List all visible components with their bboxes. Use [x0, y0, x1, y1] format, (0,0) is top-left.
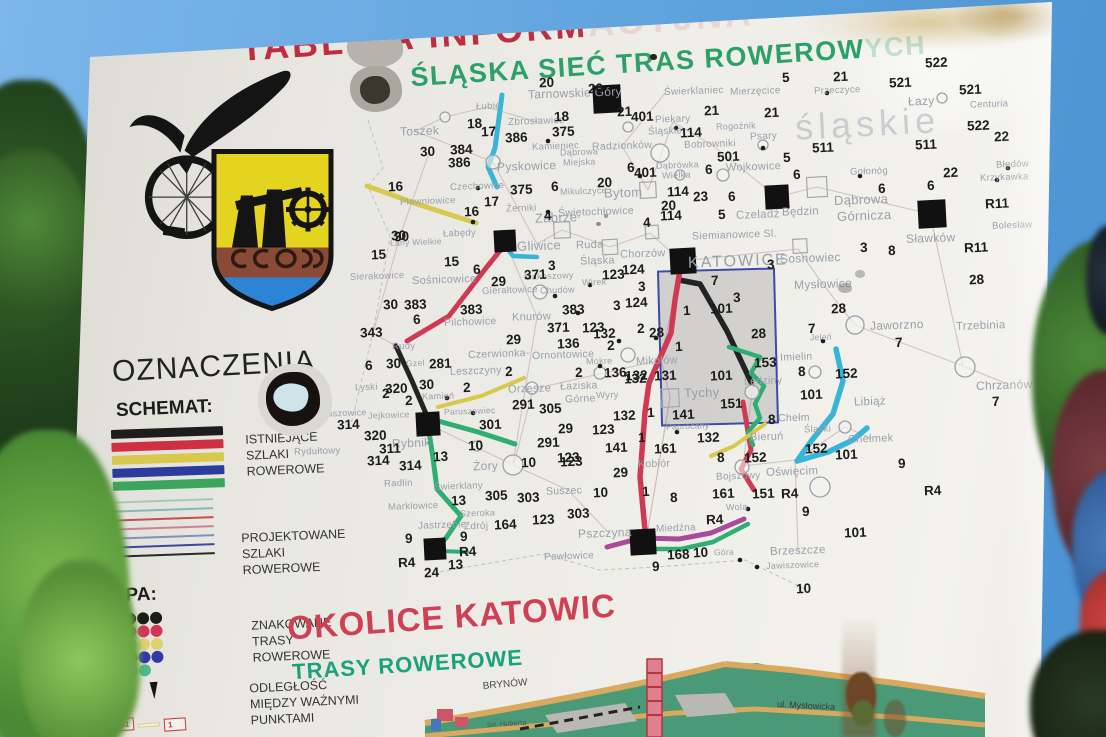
map-route-number: 8: [798, 364, 806, 379]
map-route-number: 3: [613, 298, 621, 313]
map-town-label: Radlin: [384, 478, 413, 490]
map-town-label: Jawiszowice: [766, 559, 820, 571]
map-route-number: 305: [539, 401, 562, 417]
map-route-number: 101: [710, 301, 733, 317]
map-route-number: 6: [728, 189, 736, 204]
street-label-district: BRYNÓW: [482, 675, 528, 692]
map-route-number: 7: [711, 273, 719, 288]
map-route-number: 401: [634, 165, 657, 181]
map-town-label: Czeladź: [736, 208, 780, 222]
street-map-fragment: BRYNÓW św. Huberta ul. Mysłowicka: [425, 653, 985, 737]
map-route-number: 511: [812, 140, 834, 156]
map-route-number: R4: [398, 555, 416, 571]
map-town-label: Śląski: [804, 424, 832, 436]
map-town-label: Sierakowice: [350, 270, 405, 283]
map-town-label: Błędów: [996, 158, 1029, 170]
map-town-label: Marklowice: [388, 500, 439, 513]
map-town-label: Mysłowice: [794, 276, 853, 292]
map-route-number: 16: [388, 179, 404, 195]
map-route-number: 383: [562, 302, 585, 318]
map-town-label: Szeroka: [460, 507, 495, 518]
map-route-number: 3: [860, 240, 868, 255]
map-route-number: 22: [994, 129, 1010, 145]
map-marker-square: [493, 229, 516, 252]
map-marker-square: [629, 528, 656, 555]
map-route-number: 16: [464, 204, 480, 220]
map-route-number: 7: [808, 321, 816, 336]
map-route-number: 511: [915, 137, 937, 153]
map-town-label: Wyry: [596, 390, 619, 402]
map-route-number: 6: [878, 181, 886, 196]
map-route-number: 29: [491, 274, 507, 290]
map-route-number: 383: [404, 297, 427, 313]
map-route-number: 101: [710, 368, 733, 384]
map-route-number: 301: [479, 417, 502, 433]
map-route-number: 521: [959, 82, 982, 98]
map-route-number: 151: [720, 396, 743, 412]
map-town-label: Paruszowiec: [444, 405, 496, 417]
map-town-label: Świerklaniec: [664, 85, 724, 98]
map-marker-square: [423, 537, 446, 560]
map-town-label: Pyskowice: [497, 158, 557, 174]
map-town-label: Zdrój: [464, 521, 489, 533]
map-route-number: 101: [835, 447, 858, 463]
map-route-number: 314: [337, 417, 360, 433]
map-route-number: 5: [718, 207, 726, 222]
map-route-number: 30: [383, 297, 399, 313]
map-route-number: 8: [717, 450, 725, 465]
map-route-number: 1: [642, 484, 650, 499]
map-route-number: 5: [782, 70, 790, 85]
map-route-number: R11: [964, 239, 989, 255]
map-town-label: Chełmek: [848, 432, 894, 446]
map-town-label: Żory: [473, 459, 499, 474]
map-route-number: 501: [717, 149, 740, 165]
map-route-number: 17: [481, 124, 497, 140]
map-route-number: 153: [754, 355, 777, 371]
map-town-label: Lyski: [355, 382, 378, 394]
map-route-number: 30: [386, 356, 402, 372]
map-route-number: 123: [592, 422, 615, 438]
map-town-label: Krzykawka: [980, 171, 1029, 184]
map-town-label: Górnicza: [837, 207, 892, 224]
map-town-label: Pawłowice: [544, 550, 594, 563]
map-town-label: Wola: [726, 502, 748, 513]
map-route-number: 10: [468, 438, 484, 454]
map-town-label: Jaworzno: [870, 317, 924, 333]
map-route-number: 20: [588, 81, 604, 97]
map-route-number: 123: [582, 320, 605, 336]
map-route-number: 7: [992, 394, 1000, 409]
map-town-label: Przeczyce: [814, 84, 861, 97]
map-route-number: 371: [524, 267, 547, 283]
map-route-number: 343: [360, 325, 383, 341]
map-route-number: 161: [654, 441, 677, 457]
map-route-number: 10: [593, 485, 609, 501]
map-route-number: 22: [943, 165, 959, 181]
map-town-label: Chełm: [778, 411, 810, 424]
map-route-number: 15: [444, 254, 460, 270]
map-route-number: 164: [494, 517, 517, 533]
map-route-number: 4: [643, 215, 651, 230]
map-route-number: 13: [448, 557, 464, 573]
map-town-label: Wielka: [662, 170, 691, 181]
map-route-number: 152: [835, 366, 858, 382]
map-route-number: 114: [660, 208, 682, 224]
map-town-label: Gzel: [406, 358, 425, 369]
map-route-number: 3: [638, 279, 646, 294]
map-route-number: 522: [925, 55, 948, 71]
map-route-number: 18: [554, 109, 570, 125]
map-route-number: 152: [805, 441, 828, 457]
map-route-number: 136: [557, 336, 580, 352]
map-town-label: Leszczyny: [450, 364, 502, 378]
map-route-number: 9: [898, 456, 906, 471]
map-route-number: 21: [833, 69, 849, 85]
map-town-label: Pilchowice: [444, 315, 497, 329]
map-town-label: Piekary: [655, 113, 691, 125]
map-route-number: 7: [895, 335, 903, 350]
map-town-label: Centuria: [970, 98, 1009, 110]
map-route-number: 6: [473, 262, 481, 277]
map-town-label: Będzin: [782, 205, 819, 218]
map-route-number: 20: [539, 75, 555, 91]
map-town-label: Rogoźnik: [716, 120, 756, 131]
map-route-number: 2: [505, 364, 513, 379]
map-route-number: 15: [371, 247, 387, 263]
map-route-number: 2: [382, 386, 390, 401]
map-route-number: 2: [637, 321, 645, 336]
map-route-number: 4: [544, 208, 552, 223]
map-route-number: 9: [460, 529, 468, 544]
map-town-label: Mierzęcice: [730, 85, 781, 98]
map-route-number: 303: [567, 506, 590, 522]
map-town-label: Chorzów: [620, 247, 666, 261]
map-route-number: 3: [548, 258, 556, 273]
map-route-number: 8: [768, 412, 776, 427]
photo-scene: TABLICA INFORMACYJNA ŚLĄSKA SIEĆ TRAS RO…: [0, 0, 1106, 737]
map-town-label: Miedźna: [656, 522, 696, 534]
map-route-number: 6: [705, 162, 713, 177]
map-route-number: 30: [394, 229, 410, 245]
map-town-label: Ruda: [576, 239, 604, 252]
map-route-number: 401: [631, 109, 654, 125]
map-town-label: Sośnicowice: [412, 273, 477, 287]
map-route-number: 151: [752, 486, 775, 502]
map-town-label: Śląskie: [648, 125, 683, 137]
map-route-number: 291: [537, 435, 560, 451]
map-route-number: 29: [558, 421, 574, 437]
map-route-number: R4: [706, 512, 724, 528]
map-town-label: Czerwionka-: [468, 347, 530, 361]
map-route-number: 3: [733, 290, 741, 305]
map-route-number: 9: [405, 531, 413, 546]
map-route-number: 132: [697, 430, 720, 446]
map-town-label: Kobiór: [638, 457, 671, 470]
map-town-label: Chudów: [540, 284, 575, 295]
map-route-number: 371: [547, 320, 570, 336]
map-route-number: 114: [680, 125, 702, 141]
map-route-number: 281: [429, 356, 452, 372]
map-town-label: Sławków: [906, 230, 956, 246]
map-route-number: 101: [844, 525, 867, 541]
map-route-number: 28: [831, 301, 847, 317]
map-route-number: 13: [451, 493, 467, 509]
map-route-number: 6: [365, 358, 373, 373]
map-town-label: Świerklany: [434, 480, 483, 493]
map-route-number: 1: [675, 339, 683, 354]
map-town-label: Rydułtowy: [294, 445, 341, 458]
map-route-number: 30: [420, 144, 436, 160]
map-town-label: Psary: [750, 131, 777, 143]
map-route-number: 23: [693, 189, 709, 205]
map-route-number: 6: [927, 178, 935, 193]
map-marker-square: [917, 199, 946, 228]
map-route-number: 6: [551, 179, 559, 194]
map-route-number: 8: [888, 243, 896, 258]
map-route-number: 1: [647, 405, 655, 420]
map-route-number: 305: [485, 488, 508, 504]
map-town-label: Śląska: [580, 254, 615, 267]
map-route-number: 9: [802, 504, 810, 519]
leaves-bottom-left: [20, 560, 140, 737]
map-route-number: 383: [460, 302, 483, 318]
map-route-number: 10: [693, 545, 709, 561]
map-route-number: 28: [751, 326, 767, 342]
map-town-label: Radzionków: [592, 139, 653, 153]
map-route-number: 2: [405, 393, 413, 408]
map-route-number: 123: [560, 454, 583, 470]
map-town-label: Pławniowice: [400, 195, 456, 208]
map-town-label: Czechowice: [450, 180, 505, 193]
map-town-label: Orzesze: [508, 382, 551, 395]
map-route-number: 5: [783, 150, 791, 165]
map-route-number: 314: [399, 458, 422, 474]
map-route-number: 152: [744, 450, 767, 466]
map-town-label: Bolesław: [992, 219, 1033, 231]
map-town-label: Łabędy: [443, 227, 476, 239]
map-route-number: 28: [649, 325, 665, 341]
map-town-label: Oświęcim: [766, 465, 819, 479]
map-route-number: 28: [969, 272, 985, 288]
map-route-number: 141: [605, 440, 628, 456]
map-route-number: 386: [505, 130, 528, 146]
map-route-number: 314: [367, 453, 390, 469]
map-route-number: 101: [800, 387, 823, 403]
map-town-label: Brzeszcze: [770, 544, 826, 558]
map-route-number: 124: [625, 295, 648, 311]
map-town-label: Mikołów: [636, 354, 678, 367]
map-route-number: 131: [654, 368, 677, 384]
map-route-number: 9: [652, 559, 660, 574]
map-town-label: Toszek: [400, 123, 440, 138]
map-route-number: 386: [448, 155, 471, 171]
map-route-number: 24: [424, 565, 440, 581]
map-route-number: 2: [607, 338, 615, 353]
map-town-label: Sosnowiec: [780, 250, 841, 266]
map-route-number: 29: [506, 332, 522, 348]
map-route-number: 521: [889, 75, 912, 91]
map-route-number: 141: [672, 407, 695, 423]
map-route-number: 375: [510, 182, 533, 198]
map-route-number: 168: [667, 547, 690, 563]
map-route-number: 10: [796, 581, 812, 597]
map-route-number: 375: [552, 124, 575, 140]
map-route-number: 123: [532, 512, 555, 528]
map-marker-square: [415, 411, 440, 436]
map-route-number: 1: [683, 303, 691, 318]
map-route-number: R4: [781, 486, 799, 502]
map-route-number: R11: [985, 195, 1010, 211]
map-route-number: 17: [484, 194, 500, 210]
map-town-label: Suszec: [546, 484, 583, 497]
map-route-number: 132: [613, 408, 636, 424]
map-town-label: Kamień: [422, 390, 455, 401]
map-town-label: Lędziny: [744, 374, 783, 387]
map-route-number: 21: [704, 103, 720, 119]
map-route-number: 10: [521, 455, 537, 471]
map-town-label: Gliwice: [517, 237, 561, 254]
info-board: TABLICA INFORMACYJNA ŚLĄSKA SIEĆ TRAS RO…: [0, 0, 1106, 737]
map-route-number: 303: [517, 490, 540, 506]
map-route-number: 30: [419, 377, 435, 393]
map-route-number: 6: [413, 312, 421, 327]
map-town-label: Knurów: [512, 310, 552, 323]
map-town-label: Gołonóg: [850, 165, 888, 177]
map-route-number: 3: [767, 257, 775, 272]
map-route-number: 132: [624, 371, 647, 387]
map-town-label: Trzebinia: [956, 319, 1006, 333]
map-route-number: 2: [575, 365, 583, 380]
map-town-label: Łubie: [476, 101, 501, 113]
map-town-label: Miejska: [563, 156, 596, 167]
map-town-label: Tychy: [684, 384, 720, 400]
map-route-number: 13: [433, 449, 449, 465]
map-town-label: Góra: [714, 547, 734, 558]
map-route-number: 20: [597, 175, 613, 191]
map-route-number: 522: [967, 118, 990, 134]
map-town-label: Bojszowy: [716, 470, 761, 483]
map-route-number: 161: [712, 486, 735, 502]
map-route-number: 2: [463, 380, 471, 395]
map-town-label: Łaziska: [560, 379, 598, 392]
map-route-number: 8: [670, 490, 678, 505]
map-route-number: 291: [512, 397, 535, 413]
map-town-label: Pszczyna: [578, 525, 632, 541]
map-town-label: Libiąż: [854, 395, 886, 408]
map-town-label: Łazy: [908, 94, 935, 109]
map-route-number: 1: [638, 430, 646, 445]
map-route-number: 6: [793, 167, 801, 182]
map-town-label: Imielin: [780, 350, 813, 363]
map-route-number: 29: [613, 465, 629, 481]
map-route-number: 124: [622, 262, 645, 278]
map-town-label: Bieruń: [750, 430, 784, 443]
map-route-number: 21: [764, 105, 780, 121]
map-town-label: Chrzanów: [976, 377, 1033, 393]
map-town-label: Jejkowice: [368, 409, 410, 420]
map-route-number: R4: [924, 483, 942, 499]
map-town-label: Górne: [565, 392, 596, 405]
map-town-label: Rudy: [392, 341, 416, 353]
map-town-label: Żerniki: [506, 202, 537, 214]
